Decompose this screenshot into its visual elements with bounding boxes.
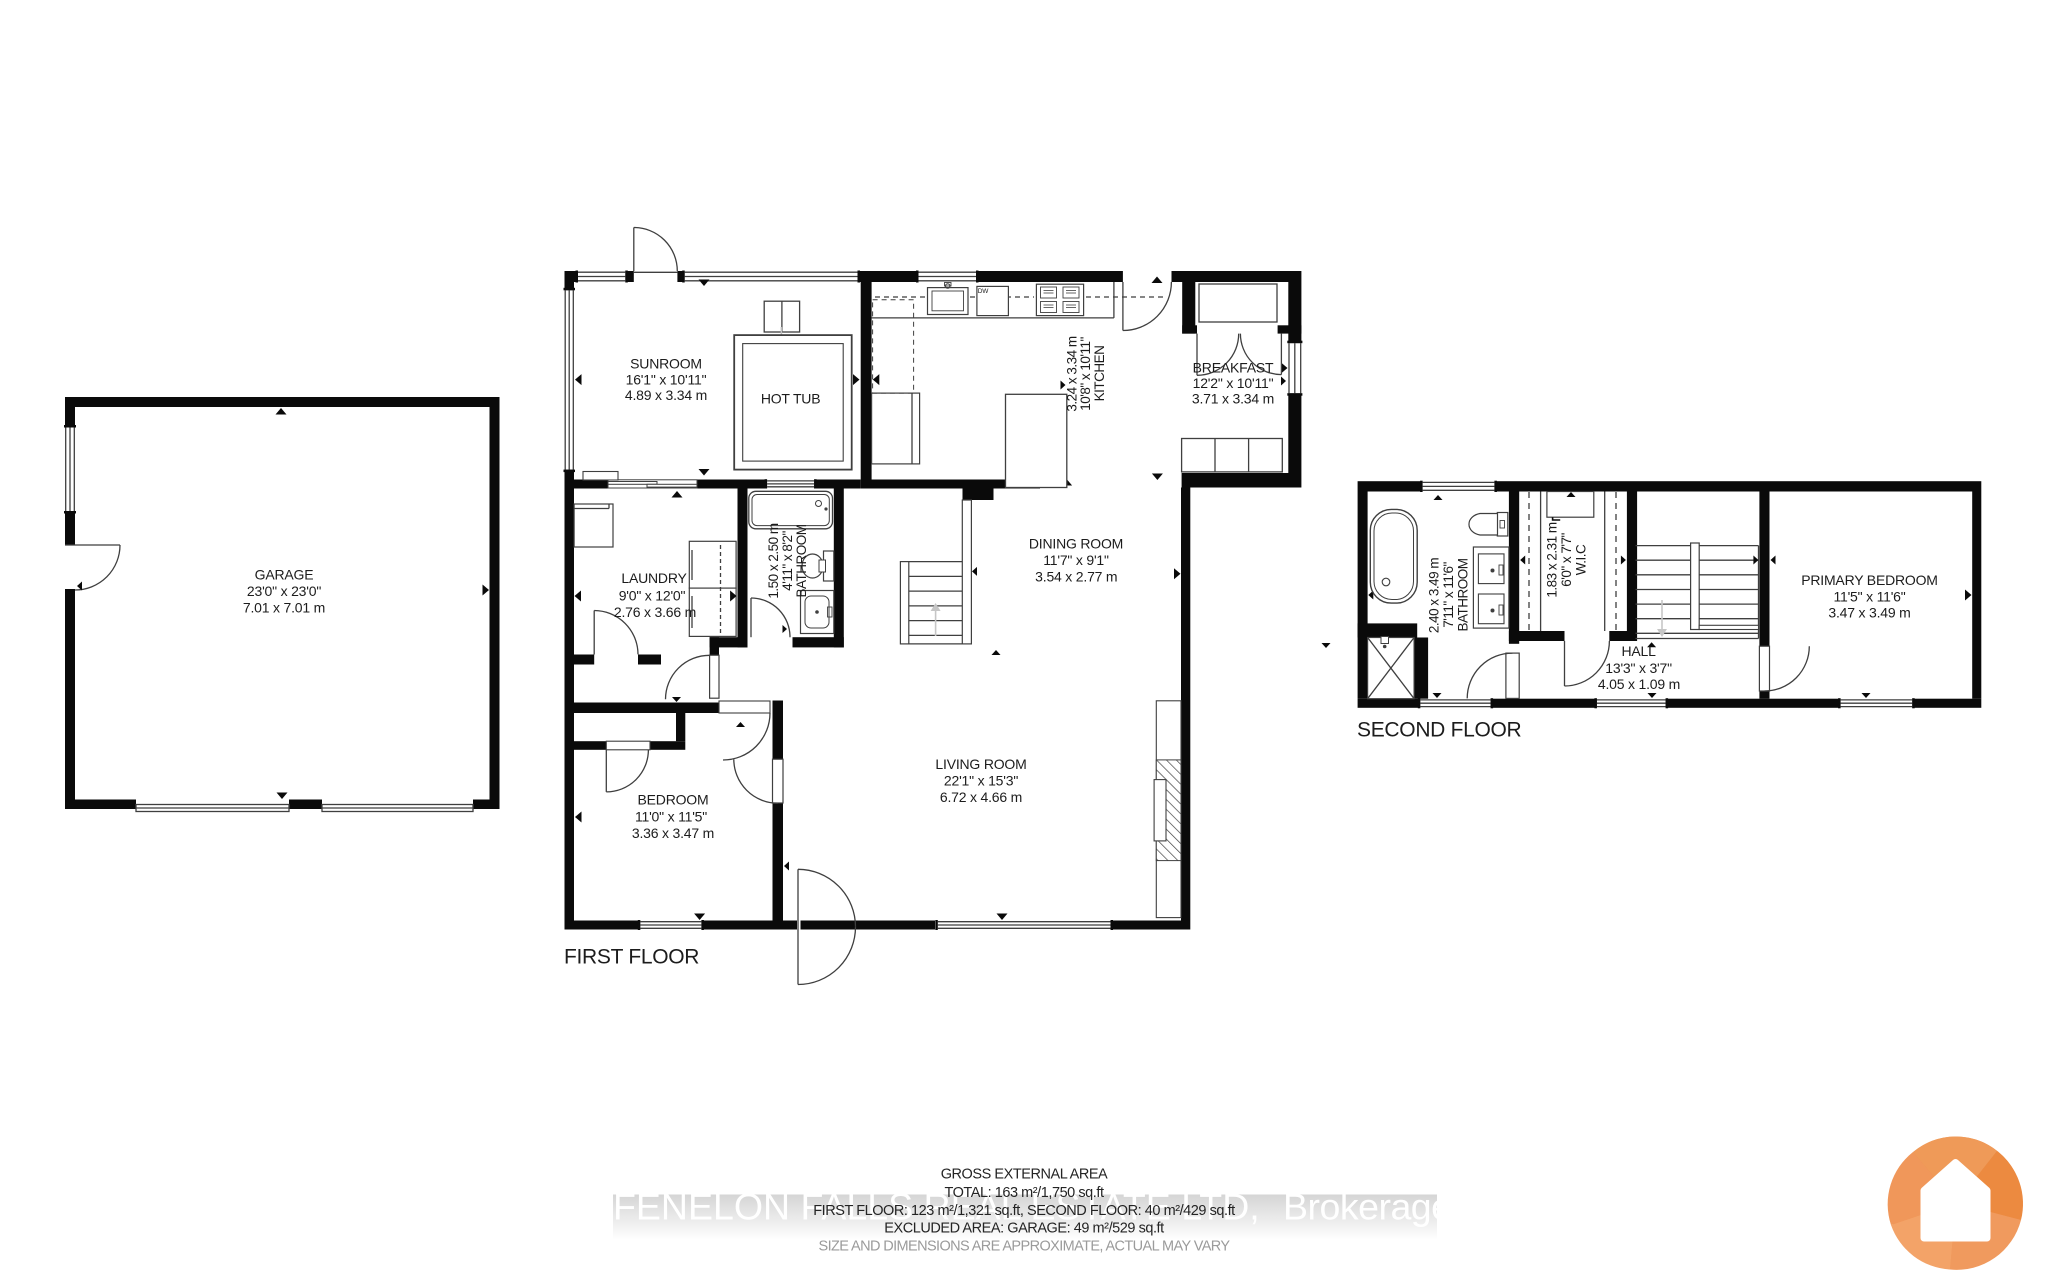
svg-text:BREAKFAST: BREAKFAST	[1193, 360, 1274, 376]
svg-text:BATHROOM: BATHROOM	[794, 524, 809, 597]
svg-text:SECOND FLOOR: SECOND FLOOR	[1357, 719, 1522, 742]
svg-text:BATHROOM: BATHROOM	[1455, 558, 1470, 631]
svg-text:4.89 x 3.34 m: 4.89 x 3.34 m	[625, 387, 707, 403]
svg-text:FIRST FLOOR: 123 m²/1,321 sq.f: FIRST FLOOR: 123 m²/1,321 sq.ft, SECOND …	[813, 1203, 1235, 1219]
svg-text:W.I.C: W.I.C	[1574, 544, 1589, 575]
svg-text:SUNROOM: SUNROOM	[630, 356, 702, 372]
svg-text:7'11" x 11'6": 7'11" x 11'6"	[1441, 562, 1456, 628]
svg-text:HALL: HALL	[1621, 643, 1656, 659]
svg-text:FIRST FLOOR: FIRST FLOOR	[564, 946, 699, 969]
svg-text:LAUNDRY: LAUNDRY	[621, 570, 687, 586]
svg-text:PRIMARY BEDROOM: PRIMARY BEDROOM	[1801, 572, 1938, 588]
svg-text:3.24 x 3.34 m: 3.24 x 3.34 m	[1065, 336, 1080, 412]
svg-text:3.54 x 2.77 m: 3.54 x 2.77 m	[1035, 569, 1117, 585]
svg-text:GROSS EXTERNAL AREA: GROSS EXTERNAL AREA	[941, 1166, 1108, 1182]
svg-text:2.76 x 3.66 m: 2.76 x 3.66 m	[614, 604, 696, 620]
svg-text:GARAGE: GARAGE	[255, 567, 314, 583]
svg-text:13'3" x 3'7": 13'3" x 3'7"	[1605, 660, 1672, 676]
svg-text:BEDROOM: BEDROOM	[638, 792, 709, 808]
svg-text:9'0" x 12'0": 9'0" x 12'0"	[619, 587, 686, 603]
svg-text:23'0" x 23'0": 23'0" x 23'0"	[247, 583, 321, 599]
svg-text:DW: DW	[978, 288, 989, 295]
svg-text:3.36 x 3.47 m: 3.36 x 3.47 m	[632, 825, 714, 841]
svg-text:12'2" x 10'11": 12'2" x 10'11"	[1193, 375, 1274, 391]
svg-text:DINING ROOM: DINING ROOM	[1029, 535, 1123, 551]
svg-text:Brokerage: Brokerage	[1283, 1185, 1452, 1227]
svg-text:1.50 x 2.50 m: 1.50 x 2.50 m	[766, 523, 781, 599]
svg-text:3.71 x 3.34 m: 3.71 x 3.34 m	[1192, 391, 1274, 407]
svg-text:6.72 x 4.66 m: 6.72 x 4.66 m	[940, 789, 1022, 805]
svg-text:4'11" x 8'2": 4'11" x 8'2"	[780, 531, 795, 591]
svg-text:SIZE AND DIMENSIONS ARE APPROX: SIZE AND DIMENSIONS ARE APPROXIMATE, ACT…	[819, 1238, 1231, 1254]
svg-text:LIVING ROOM: LIVING ROOM	[935, 756, 1026, 772]
svg-text:7.01 x 7.01 m: 7.01 x 7.01 m	[243, 599, 325, 615]
svg-text:6'0" x 7'7": 6'0" x 7'7"	[1559, 533, 1574, 587]
svg-text:TOTAL: 163 m²/1,750 sq.ft: TOTAL: 163 m²/1,750 sq.ft	[944, 1185, 1103, 1201]
svg-text:HOT TUB: HOT TUB	[761, 391, 821, 407]
svg-text:EXCLUDED AREA: GARAGE: 49 m²/5: EXCLUDED AREA: GARAGE: 49 m²/529 sq.ft	[884, 1220, 1164, 1236]
svg-text:2.40 x 3.49 m: 2.40 x 3.49 m	[1426, 558, 1441, 634]
svg-text:11'0" x 11'5": 11'0" x 11'5"	[635, 809, 707, 825]
svg-text:4.05 x 1.09 m: 4.05 x 1.09 m	[1598, 676, 1680, 692]
svg-text:16'1" x 10'11": 16'1" x 10'11"	[626, 371, 707, 387]
svg-text:3.47 x 3.49 m: 3.47 x 3.49 m	[1828, 605, 1910, 621]
svg-text:10'8" x 10'11": 10'8" x 10'11"	[1078, 337, 1093, 411]
svg-text:1.83 x 2.31 m: 1.83 x 2.31 m	[1545, 522, 1560, 598]
svg-text:11'5" x 11'6": 11'5" x 11'6"	[1833, 588, 1905, 604]
svg-text:KITCHEN: KITCHEN	[1092, 346, 1107, 402]
svg-text:22'1" x 15'3": 22'1" x 15'3"	[944, 772, 1018, 788]
svg-text:11'7" x 9'1": 11'7" x 9'1"	[1043, 552, 1109, 568]
